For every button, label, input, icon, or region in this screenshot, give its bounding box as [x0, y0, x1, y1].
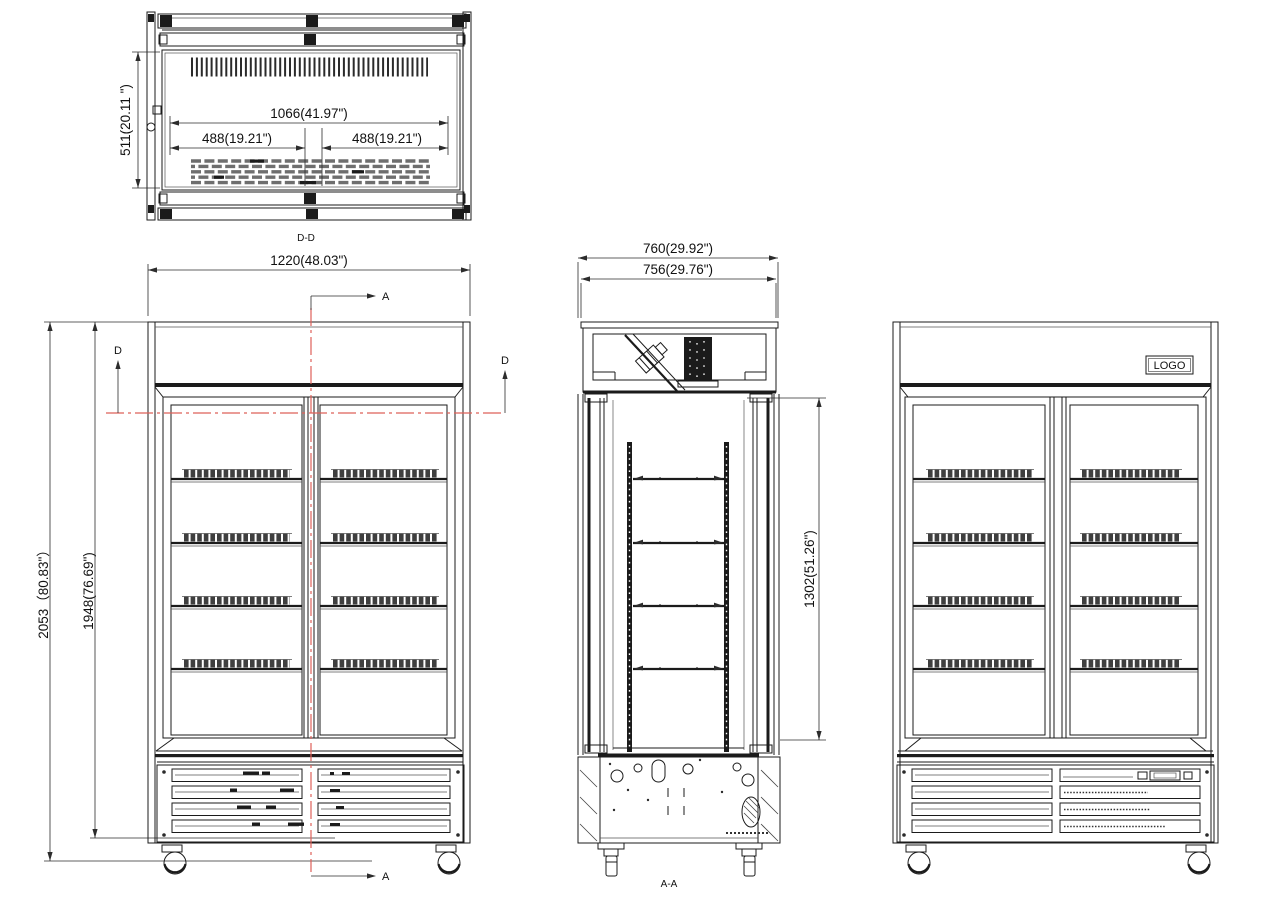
- dim-label-inner-width: 1066(41.97"): [270, 106, 348, 121]
- dim-interior-height: 1302(51.26"): [747, 398, 826, 740]
- section-shelf: [633, 666, 724, 671]
- door-cross-sections: [578, 394, 779, 755]
- dim-depth-body: 756(29.76"): [581, 262, 776, 318]
- shelf-row: [171, 470, 447, 483]
- marker-letter-d-left: D: [114, 345, 122, 357]
- marker-letter-a-top: A: [382, 291, 390, 303]
- dim-heights: 2053（80.83"） 1948(76.69"): [36, 322, 372, 861]
- section-view-aa: 760(29.92") 756(29.76"): [578, 241, 826, 890]
- refrigerator-technical-drawing: 1066(41.97") 488(19.21") 488(19.21") 511…: [0, 0, 1268, 898]
- slat-vent-field: [191, 160, 430, 185]
- shelf-post: [627, 442, 632, 752]
- logo-plate: LOGO: [1146, 356, 1193, 374]
- dim-label-height-overall: 2053（80.83"）: [36, 543, 51, 639]
- section-marker-d-left: D: [114, 345, 122, 413]
- dim-depth: 511(20.11 "): [118, 52, 160, 188]
- front-doors: [163, 397, 455, 738]
- section-marker-a-top: A: [311, 291, 390, 310]
- section-label-dd: D-D: [297, 233, 315, 244]
- shelf-row: [171, 660, 447, 673]
- right-doors: [905, 397, 1206, 738]
- section-shelf: [633, 476, 724, 481]
- shelf-post: [724, 442, 729, 752]
- section-casters: [598, 843, 762, 876]
- shelf-row: [913, 470, 1198, 483]
- right-view: LOGO: [893, 322, 1218, 874]
- front-shelves: [171, 470, 447, 673]
- front-view: 1220(48.03") 2053（80.83"） 1948(76.69"): [36, 253, 509, 883]
- shelf-row: [913, 660, 1198, 673]
- section-marker-d-right: D: [501, 355, 509, 413]
- right-casters: [906, 845, 1210, 874]
- shelf-row: [913, 597, 1198, 610]
- top-rails: [158, 14, 466, 46]
- dim-label-depth: 511(20.11 "): [118, 84, 133, 156]
- dim-depth-overall: 760(29.92"): [578, 241, 778, 318]
- evaporator-coil: [684, 337, 712, 381]
- dim-label-left-half: 488(19.21"): [202, 131, 272, 146]
- evaporator-compartment: [581, 322, 778, 392]
- dim-label-depth-overall: 760(29.92"): [643, 241, 713, 256]
- shelf-row: [171, 597, 447, 610]
- drawing-canvas: 1066(41.97") 488(19.21") 488(19.21") 511…: [0, 0, 1268, 898]
- marker-letter-a-bottom: A: [382, 871, 390, 883]
- top-view-section-dd: 1066(41.97") 488(19.21") 488(19.21") 511…: [118, 12, 471, 244]
- logo-text: LOGO: [1154, 360, 1186, 372]
- front-deck: [155, 738, 463, 762]
- right-deck: [897, 738, 1214, 762]
- dim-label-height-cabinet: 1948(76.69"): [81, 552, 96, 630]
- dim-label-right-half: 488(19.21"): [352, 131, 422, 146]
- shelf-row: [171, 534, 447, 547]
- dim-label-depth-body: 756(29.76"): [643, 262, 713, 277]
- section-marker-a-bottom: A: [311, 871, 390, 883]
- section-label-aa: A-A: [661, 879, 678, 890]
- shelf-row: [913, 534, 1198, 547]
- dim-width: 1220(48.03"): [148, 253, 470, 316]
- dim-label-interior-height: 1302(51.26"): [802, 530, 817, 608]
- interior-shelving: [598, 442, 759, 755]
- bottom-rails: [158, 192, 466, 220]
- section-shelf: [633, 603, 724, 608]
- right-louver-grille: [897, 765, 1214, 842]
- controller-panel: [1063, 771, 1192, 780]
- marker-letter-d-right: D: [501, 355, 509, 367]
- compressor-compartment: [578, 757, 780, 843]
- dim-label-width: 1220(48.03"): [270, 253, 348, 268]
- right-shelves: [913, 470, 1198, 673]
- section-shelf: [633, 540, 724, 545]
